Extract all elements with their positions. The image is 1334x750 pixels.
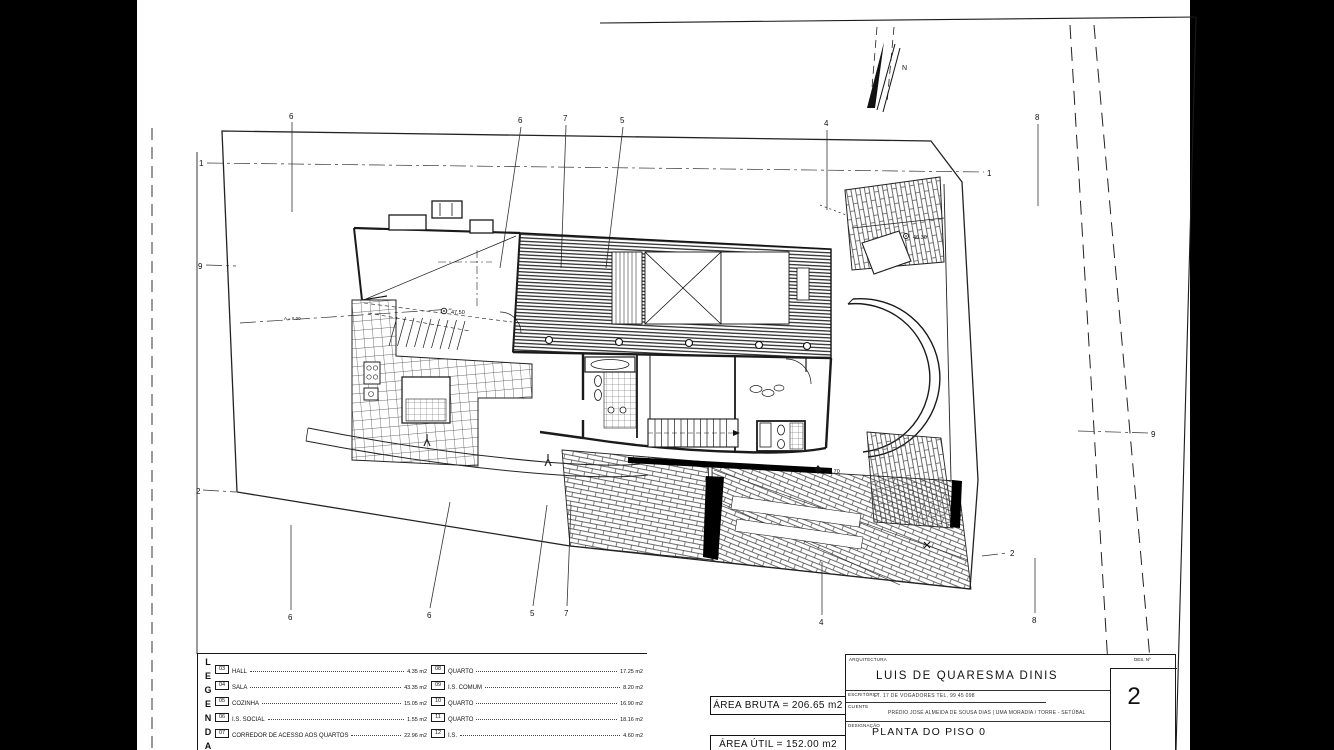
legend-area: 43.35 m2 bbox=[404, 685, 427, 691]
architect-name: LUIS DE QUARESMA DINIS bbox=[876, 670, 1058, 682]
terrace-bottom-left bbox=[562, 450, 712, 560]
sheet-number-label: DES. Nº bbox=[1134, 657, 1151, 662]
marker-top-7: 7 bbox=[563, 114, 568, 123]
marker-bottom-5: 5 bbox=[530, 609, 535, 618]
legend-num: 04 bbox=[215, 681, 229, 690]
terrace-top-right bbox=[845, 177, 944, 274]
legend-leader bbox=[476, 703, 617, 704]
legend-columns: 03 HALL 4.35 m2 04 SALA 43.35 m2 05 COZI… bbox=[215, 654, 647, 750]
marker-left-9: 9 bbox=[198, 262, 203, 271]
legend-label: HALL bbox=[232, 669, 247, 675]
legend-leader bbox=[250, 687, 401, 688]
legend-area: 16.90 m2 bbox=[620, 701, 643, 707]
client-label: CLIENTE bbox=[848, 704, 868, 709]
deck-hatched-roof bbox=[513, 233, 831, 358]
legend-num: 05 bbox=[215, 697, 229, 706]
legend-area: 1.55 m2 bbox=[407, 717, 427, 723]
sheet-number: 2 bbox=[1127, 683, 1140, 711]
marker-top-4: 4 bbox=[824, 119, 829, 128]
legend-item-hall: 03 HALL 4.35 m2 bbox=[215, 660, 431, 676]
project-text: PRÉDIO JOSÉ ALMEIDA DE SOUSA DIAS | UMA … bbox=[888, 710, 1086, 716]
legend-area: 15.05 m2 bbox=[404, 701, 427, 707]
left-black-bar bbox=[0, 0, 137, 750]
legend-num: 03 bbox=[215, 665, 229, 674]
legend-area: 4.60 m2 bbox=[623, 733, 643, 739]
legend-num: 09 bbox=[431, 681, 445, 690]
title-block: ARQUITECTURA LUIS DE QUARESMA DINIS ESCR… bbox=[845, 654, 1176, 750]
legend-title: LEGENDA bbox=[198, 654, 215, 750]
area-util-box: ÁREA ÚTIL = 152.00 m2 bbox=[710, 735, 846, 750]
legend-column-1: 03 HALL 4.35 m2 04 SALA 43.35 m2 05 COZI… bbox=[215, 660, 431, 750]
legend-num: 12 bbox=[431, 729, 445, 738]
area-bruta-box: ÁREA BRUTA = 206.65 m2 bbox=[710, 696, 846, 715]
marker-bottom-7: 7 bbox=[564, 609, 569, 618]
legend-item-is-social: 06 I.S. SOCIAL 1.55 m2 bbox=[215, 708, 431, 724]
legend-label: I.S. COMUM bbox=[448, 685, 482, 691]
legend-item-sala: 04 SALA 43.35 m2 bbox=[215, 676, 431, 692]
legend-area: 17.25 m2 bbox=[620, 669, 643, 675]
divider bbox=[846, 721, 1110, 722]
scanned-floor-plan-page: N 6 6 7 5 4 8 6 6 5 7 4 8 1 9 2 1 bbox=[0, 0, 1334, 750]
marker-top-6a: 6 bbox=[289, 112, 294, 121]
legend-leader bbox=[250, 671, 404, 672]
marker-bottom-6b: 6 bbox=[427, 611, 432, 620]
property-lines bbox=[152, 25, 1158, 750]
marker-bottom-8: 8 bbox=[1032, 616, 1037, 625]
drawing-title: PLANTA DO PISO 0 bbox=[872, 726, 986, 738]
legend-num: 07 bbox=[215, 729, 229, 738]
legend-leader bbox=[476, 671, 617, 672]
legend-num: 10 bbox=[431, 697, 445, 706]
marker-left-2: 2 bbox=[196, 487, 201, 496]
marker-left-1: 1 bbox=[199, 159, 204, 168]
rooms-band bbox=[513, 352, 831, 453]
level-wing: 47.50 bbox=[451, 310, 465, 316]
legend-area: 18.16 m2 bbox=[620, 717, 643, 723]
level-upper-terrace: 46.30 bbox=[913, 235, 927, 241]
marker-top-6b: 6 bbox=[518, 116, 523, 125]
office-text: LT. 17 DE VOGADORES TEL. 99 45 098 bbox=[874, 693, 975, 699]
legend-item-quarto-08: 08 QUARTO 17.25 m2 bbox=[431, 660, 647, 676]
right-black-bar bbox=[1190, 0, 1334, 750]
legend-item-quarto-11: 11 QUARTO 18.16 m2 bbox=[431, 708, 647, 724]
legend-leader bbox=[268, 719, 404, 720]
marker-bottom-6a: 6 bbox=[288, 613, 293, 622]
legend-item-corredor: 07 CORREDOR DE ACESSO AOS QUARTOS 22.96 … bbox=[215, 724, 431, 740]
legend-leader bbox=[485, 687, 620, 688]
marker-top-5: 5 bbox=[620, 116, 625, 125]
legend-item-is-comum: 09 I.S. COMUM 8.20 m2 bbox=[431, 676, 647, 692]
legend-leader bbox=[476, 719, 617, 720]
legend-label: SALA bbox=[232, 685, 247, 691]
level-terrace: 45.70 bbox=[826, 469, 840, 475]
legend-area: 4.35 m2 bbox=[407, 669, 427, 675]
north-label: N bbox=[902, 65, 907, 72]
legend-num: 06 bbox=[215, 713, 229, 722]
floor-plan-drawing: N 6 6 7 5 4 8 6 6 5 7 4 8 1 9 2 1 bbox=[0, 0, 1334, 750]
terrace-bottom-right bbox=[712, 466, 971, 589]
legend-area: 22.96 m2 bbox=[404, 733, 427, 739]
marker-top-8: 8 bbox=[1035, 113, 1040, 122]
legend-label: QUARTO bbox=[448, 701, 473, 707]
sheet-number-cell bbox=[1110, 668, 1177, 750]
legend-item-cozinha: 05 COZINHA 15.05 m2 bbox=[215, 692, 431, 708]
legend-area: 8.20 m2 bbox=[623, 685, 643, 691]
legend-item-quarto-10: 10 QUARTO 16.90 m2 bbox=[431, 692, 647, 708]
marker-right-1: 1 bbox=[987, 169, 992, 178]
legend-label: CORREDOR DE ACESSO AOS QUARTOS bbox=[232, 733, 348, 739]
divider bbox=[846, 690, 1110, 691]
curved-wall bbox=[848, 299, 940, 457]
legend-label: QUARTO bbox=[448, 717, 473, 723]
legend-panel: LEGENDA 03 HALL 4.35 m2 04 SALA 43.35 m2… bbox=[197, 653, 647, 750]
legend-leader bbox=[460, 735, 620, 736]
marker-bottom-4: 4 bbox=[819, 618, 824, 627]
legend-leader bbox=[262, 703, 401, 704]
legend-label: I.S. bbox=[448, 733, 457, 739]
legend-num: 08 bbox=[431, 665, 445, 674]
legend-column-2: 08 QUARTO 17.25 m2 09 I.S. COMUM 8.20 m2… bbox=[431, 660, 647, 750]
legend-label: I.S. SOCIAL bbox=[232, 717, 265, 723]
legend-label: COZINHA bbox=[232, 701, 259, 707]
marker-right-2: 2 bbox=[1010, 549, 1015, 558]
divider bbox=[846, 702, 1046, 703]
north-arrow-icon: N bbox=[867, 42, 907, 112]
marker-right-9: 9 bbox=[1151, 430, 1156, 439]
legend-item-is: 12 I.S. 4.60 m2 bbox=[431, 724, 647, 740]
discipline-label: ARQUITECTURA bbox=[849, 657, 887, 662]
aux-dimension-label: A = 6.00 bbox=[284, 316, 301, 321]
legend-leader bbox=[351, 735, 401, 736]
legend-num: 11 bbox=[431, 713, 445, 722]
legend-label: QUARTO bbox=[448, 669, 473, 675]
